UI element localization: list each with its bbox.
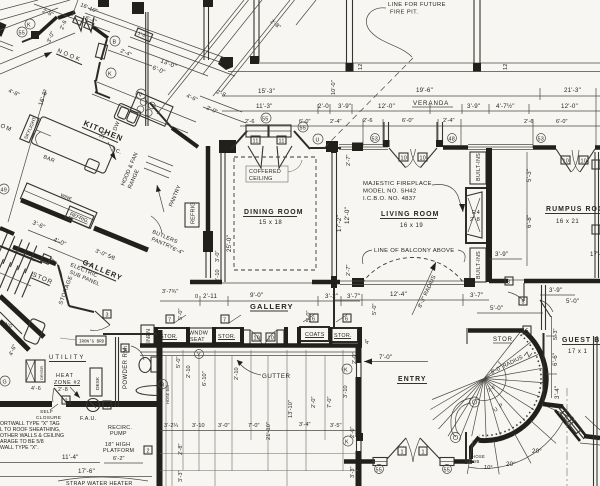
svg-text:POWDER RM.: POWDER RM. — [123, 345, 129, 389]
svg-text:19'-6": 19'-6" — [416, 87, 433, 94]
svg-text:3'-4": 3'-4" — [299, 422, 311, 428]
svg-text:2'-11: 2'-11 — [203, 293, 217, 300]
svg-text:6: 6 — [312, 317, 315, 323]
svg-text:5'-0": 5'-0" — [176, 356, 182, 368]
svg-text:3'-0": 3'-0" — [218, 423, 230, 429]
svg-text:DESK: DESK — [95, 376, 101, 390]
svg-text:55: 55 — [262, 117, 269, 123]
svg-text:K: K — [345, 440, 349, 446]
svg-text:2: 2 — [147, 449, 150, 455]
svg-text:53: 53 — [538, 137, 545, 143]
svg-text:3'-9": 3'-9" — [338, 103, 351, 110]
svg-text:2'-7": 2'-7" — [346, 154, 352, 166]
svg-text:CEILING: CEILING — [249, 176, 273, 182]
svg-text:2'-8": 2'-8" — [178, 443, 184, 455]
svg-text:7: 7 — [168, 318, 171, 324]
svg-text:ENTRY: ENTRY — [398, 376, 427, 383]
svg-text:17'-2": 17'-2" — [336, 215, 343, 232]
svg-text:5'-3": 5'-3" — [553, 328, 559, 340]
svg-text:IRON'G BRD: IRON'G BRD — [79, 340, 105, 345]
svg-text:6'-6": 6'-6" — [552, 353, 559, 366]
svg-text:LINE FOR FUTURE: LINE FOR FUTURE — [388, 2, 446, 8]
svg-text:DRYER: DRYER — [39, 366, 44, 380]
svg-text:4": 4" — [365, 339, 371, 344]
svg-text:12: 12 — [358, 64, 364, 70]
svg-text:COFFERED: COFFERED — [249, 169, 281, 175]
svg-text:6'-8": 6'-8" — [526, 215, 533, 228]
svg-text:3'-9": 3'-9" — [467, 103, 480, 110]
svg-text:48: 48 — [449, 137, 456, 143]
svg-text:17'-6": 17'-6" — [78, 468, 95, 475]
svg-text:5'-3": 5'-3" — [526, 169, 533, 182]
svg-text:16 x 21: 16 x 21 — [556, 219, 579, 225]
svg-text:SEAT: SEAT — [190, 337, 205, 343]
svg-text:13'-10": 13'-10" — [288, 400, 294, 418]
svg-text:HEAT: HEAT — [56, 373, 74, 379]
svg-text:PUMP: PUMP — [110, 431, 127, 437]
svg-text:2'-10: 2'-10 — [186, 365, 192, 378]
svg-text:25'-0": 25'-0" — [226, 235, 233, 252]
svg-text:10: 10 — [420, 156, 427, 162]
svg-text:MAJESTIC FIREPLACE: MAJESTIC FIREPLACE — [363, 181, 432, 187]
svg-text:V: V — [139, 93, 143, 99]
svg-text:RUMPUS ROOM: RUMPUS ROOM — [546, 206, 600, 213]
svg-text:0: 0 — [195, 294, 198, 300]
svg-text:K: K — [344, 368, 348, 374]
svg-text:U: U — [316, 138, 320, 144]
svg-text:2'-6: 2'-6 — [245, 119, 255, 125]
svg-text:2'-8: 2'-8 — [470, 217, 480, 223]
svg-text:11: 11 — [279, 139, 285, 145]
svg-text:10: 10 — [563, 159, 570, 165]
svg-text:VERANDA: VERANDA — [413, 100, 449, 107]
svg-text:7'-0": 7'-0" — [379, 354, 392, 361]
svg-text:7: 7 — [223, 318, 226, 324]
svg-text:5'-0": 5'-0" — [372, 303, 378, 315]
svg-text:4'-7½": 4'-7½" — [496, 103, 515, 110]
svg-text:GUTTER: GUTTER — [262, 373, 290, 380]
svg-text:2'-4": 2'-4" — [330, 119, 342, 125]
svg-text:K: K — [27, 23, 31, 29]
svg-text:16 x 19: 16 x 19 — [400, 223, 423, 229]
svg-text:21'-10": 21'-10" — [266, 422, 272, 440]
svg-text:2'-10: 2'-10 — [215, 269, 221, 282]
svg-text:53: 53 — [372, 137, 379, 143]
svg-text:WALL TYPE "X".: WALL TYPE "X". — [0, 445, 39, 451]
svg-text:10: 10 — [254, 336, 261, 342]
svg-text:6'-2": 6'-2" — [113, 456, 125, 462]
svg-text:SELF: SELF — [40, 409, 53, 415]
svg-text:2: 2 — [65, 399, 68, 405]
svg-text:12'-0": 12'-0" — [378, 103, 395, 110]
svg-text:10: 10 — [401, 156, 408, 162]
svg-text:3: 3 — [507, 280, 510, 286]
svg-text:49: 49 — [1, 188, 8, 194]
svg-text:G: G — [3, 380, 8, 386]
svg-text:B: B — [113, 40, 117, 46]
svg-text:6'-0": 6'-0" — [402, 118, 414, 124]
svg-text:F.4: F.4 — [472, 210, 480, 216]
svg-text:2'-8: 2'-8 — [58, 387, 68, 393]
svg-text:10°: 10° — [484, 465, 493, 471]
svg-text:DINING ROOM: DINING ROOM — [244, 209, 304, 216]
svg-text:UTILITY: UTILITY — [49, 355, 85, 361]
svg-text:55: 55 — [19, 31, 26, 37]
svg-text:BUILT-INS: BUILT-INS — [476, 153, 482, 181]
svg-text:6'-0": 6'-0" — [556, 119, 568, 125]
svg-text:2'-10: 2'-10 — [234, 367, 240, 380]
svg-text:6: 6 — [345, 317, 348, 323]
svg-text:FIRE PIT.: FIRE PIT. — [390, 10, 418, 16]
svg-text:17 x 1: 17 x 1 — [568, 349, 588, 355]
svg-text:3'-2¼: 3'-2¼ — [164, 423, 179, 429]
svg-text:10: 10 — [581, 159, 588, 165]
svg-text:55: 55 — [444, 468, 451, 474]
svg-text:3'-5": 3'-5" — [330, 423, 342, 429]
svg-text:2'-7": 2'-7" — [346, 264, 352, 276]
svg-text:GALLERY: GALLERY — [250, 302, 294, 311]
svg-text:REFRIG: REFRIG — [191, 202, 197, 224]
svg-text:20°: 20° — [506, 461, 516, 468]
svg-text:3'-3": 3'-3" — [350, 466, 356, 478]
svg-text:5'-0": 5'-0" — [566, 298, 579, 305]
svg-text:F.A.U.: F.A.U. — [80, 416, 96, 422]
svg-text:10'-0": 10'-0" — [331, 80, 337, 95]
svg-text:BUILT-INS: BUILT-INS — [476, 251, 482, 279]
svg-text:11'-4": 11'-4" — [62, 454, 79, 461]
svg-text:5'-0": 5'-0" — [490, 305, 503, 312]
svg-text:3'-9": 3'-9" — [495, 251, 508, 258]
svg-text:2'-4": 2'-4" — [443, 118, 455, 124]
svg-text:55: 55 — [376, 468, 383, 474]
svg-text:3'-7": 3'-7" — [470, 292, 483, 299]
svg-text:5: 5 — [522, 300, 525, 306]
svg-text:3: 3 — [106, 313, 109, 319]
svg-text:15'-3": 15'-3" — [258, 88, 275, 95]
svg-text:GUEST BED: GUEST BED — [562, 337, 600, 344]
svg-text:12'-0": 12'-0" — [344, 207, 351, 224]
svg-text:3'-2": 3'-2" — [325, 293, 338, 300]
svg-text:I.C.B.O. NO. 4837: I.C.B.O. NO. 4837 — [363, 196, 416, 202]
svg-text:3'-3": 3'-3" — [178, 470, 184, 482]
svg-text:6'-10": 6'-10" — [202, 371, 208, 386]
svg-text:11: 11 — [253, 139, 259, 145]
svg-text:STRAP WATER HEATER: STRAP WATER HEATER — [66, 481, 133, 486]
svg-text:STOR.: STOR. — [493, 337, 515, 343]
svg-text:2'-0": 2'-0" — [311, 396, 317, 408]
svg-text:1: 1 — [422, 450, 425, 456]
svg-text:7'-0": 7'-0" — [248, 423, 260, 429]
svg-text:10: 10 — [268, 336, 275, 342]
svg-text:3'-10: 3'-10 — [343, 385, 349, 398]
svg-text:1: 1 — [401, 450, 404, 456]
svg-text:12'-0": 12'-0" — [561, 103, 578, 110]
svg-text:3'-4": 3'-4" — [554, 386, 561, 399]
svg-text:2'-6: 2'-6 — [363, 118, 373, 124]
svg-text:5: 5 — [526, 329, 529, 335]
svg-text:3'-7": 3'-7" — [347, 293, 360, 300]
svg-text:WNDW: WNDW — [189, 331, 209, 337]
svg-text:3'-9": 3'-9" — [549, 287, 562, 294]
svg-text:2'-6: 2'-6 — [524, 119, 534, 125]
svg-text:4'-6: 4'-6 — [31, 386, 41, 392]
svg-text:7'-0": 7'-0" — [327, 396, 333, 408]
svg-text:LIVING ROOM: LIVING ROOM — [381, 211, 439, 218]
svg-text:LINE OF BALCONY ABOVE: LINE OF BALCONY ABOVE — [374, 248, 455, 254]
svg-text:55: 55 — [300, 126, 307, 132]
svg-text:9'-0": 9'-0" — [250, 292, 263, 299]
svg-text:2'-0: 2'-0 — [318, 103, 329, 110]
svg-text:3'-0": 3'-0" — [215, 250, 221, 262]
svg-text:K: K — [108, 72, 112, 78]
svg-text:11'-3": 11'-3" — [256, 103, 273, 110]
svg-text:2'-0": 2'-0" — [350, 426, 356, 438]
svg-text:PLATFORM: PLATFORM — [103, 448, 135, 454]
svg-text:3'-7¾": 3'-7¾" — [162, 289, 178, 295]
svg-text:12'-4": 12'-4" — [390, 291, 407, 298]
svg-text:3'-10: 3'-10 — [192, 423, 205, 429]
svg-text:Y: Y — [568, 419, 571, 424]
svg-text:12: 12 — [503, 64, 509, 70]
svg-text:MODEL NO. SH42: MODEL NO. SH42 — [363, 189, 416, 195]
svg-text:17'-: 17'- — [590, 251, 600, 258]
svg-text:4: 4 — [106, 404, 109, 410]
svg-text:21'-3": 21'-3" — [564, 87, 581, 94]
svg-text:20°: 20° — [532, 448, 542, 455]
svg-text:HOSE BIB: HOSE BIB — [165, 385, 170, 404]
svg-text:15 x 18: 15 x 18 — [259, 220, 282, 226]
